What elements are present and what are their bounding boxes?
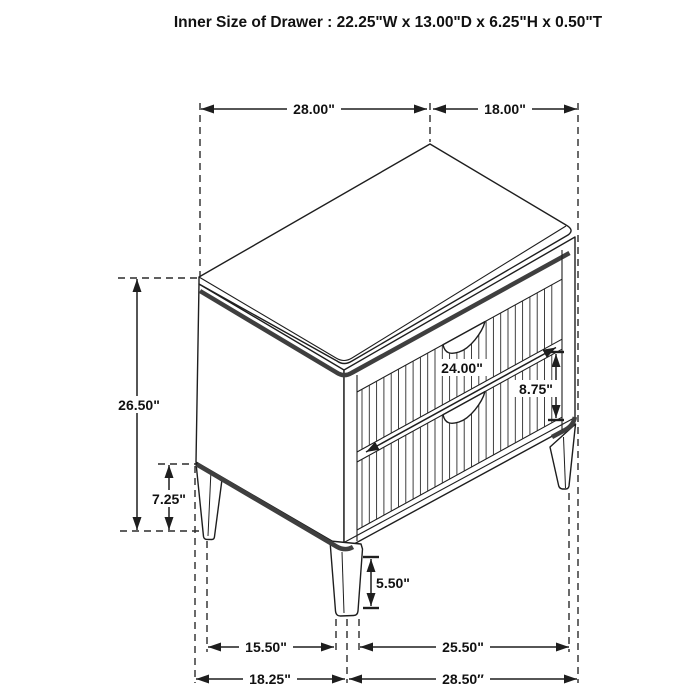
dim-drawer-width-label: 24.00" [441,360,483,376]
front-leg [330,541,363,616]
nightstand-dimension-diagram: Inner Size of Drawer : 22.25"W x 13.00"D… [0,0,700,700]
dim-drawer-height-label: 8.75" [519,381,553,397]
diagram-title: Inner Size of Drawer : 22.25"W x 13.00"D… [174,14,603,31]
dim-base-right-label: 25.50" [442,639,484,655]
dim-front-leg-label: 5.50" [376,575,410,591]
dim-top-depth-label: 18.00" [484,101,526,117]
dim-leg-section-label: 7.25" [152,491,186,507]
dim-footprint-left-label: 18.25" [249,671,291,687]
dim-top-width-label: 28.00" [293,101,335,117]
dim-base-left-label: 15.50" [245,639,287,655]
dim-overall-height-label: 26.50" [118,397,160,413]
dim-footprint-right-label: 28.50″ [442,671,484,687]
diagram-canvas: Inner Size of Drawer : 22.25"W x 13.00"D… [0,0,700,700]
